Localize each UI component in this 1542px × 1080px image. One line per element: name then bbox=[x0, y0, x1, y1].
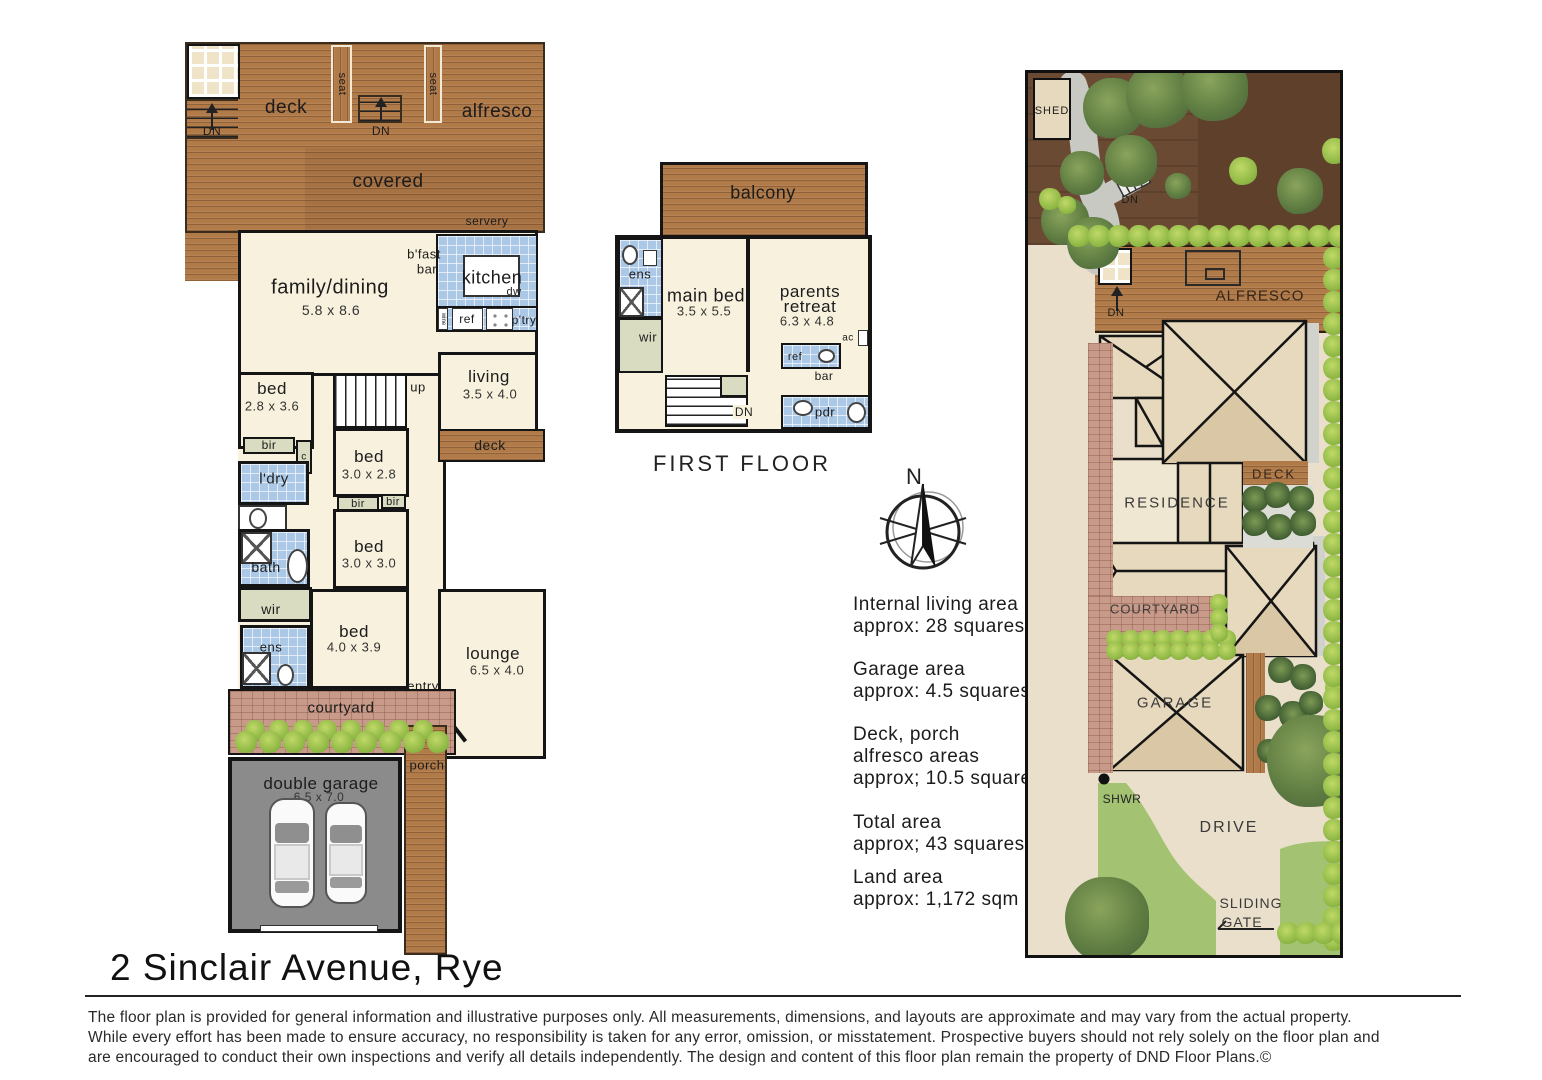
hedge-bush-icon bbox=[307, 731, 329, 753]
hedge-bush-icon bbox=[1228, 225, 1250, 247]
hedge-bush-icon bbox=[1128, 225, 1150, 247]
wine-label: wine bbox=[440, 313, 446, 325]
hedge-bush-icon bbox=[1323, 511, 1343, 533]
shower-icon bbox=[619, 287, 644, 317]
compass-north-label: N bbox=[906, 466, 922, 489]
disclaimer-line-1: The floor plan is provided for general i… bbox=[88, 1009, 1352, 1027]
hedge-bush-icon bbox=[1323, 797, 1343, 819]
stat-deck-2: alfresco areas bbox=[853, 746, 979, 768]
hedge-bush-icon bbox=[1323, 665, 1343, 687]
hedge-bush-icon bbox=[1229, 157, 1257, 185]
hedge-bush-icon bbox=[259, 731, 281, 753]
bed1-label: bed bbox=[257, 379, 287, 399]
hedge-bush-icon bbox=[235, 731, 257, 753]
living-label: living bbox=[468, 367, 510, 387]
hedge-bush-icon bbox=[1323, 709, 1343, 731]
bathtub-icon bbox=[287, 549, 308, 583]
garage-door bbox=[260, 925, 378, 932]
site-shwr-label: SHWR bbox=[1103, 792, 1142, 806]
stat-internal-2: approx: 28 squares bbox=[853, 616, 1025, 638]
stat-internal-1: Internal living area bbox=[853, 594, 1018, 616]
bed3-label: bed bbox=[354, 537, 384, 557]
hedge-bush-icon bbox=[1323, 291, 1343, 313]
deck-label: deck bbox=[265, 97, 307, 119]
shower-icon bbox=[242, 652, 271, 685]
stat-total-1: Total area bbox=[853, 812, 941, 834]
shed-label: SHED bbox=[1035, 105, 1070, 117]
hedge-bush-icon bbox=[1218, 642, 1236, 660]
stat-garage-1: Garage area bbox=[853, 659, 965, 681]
site-garage-label: GARAGE bbox=[1137, 695, 1213, 712]
pantry-label: p'try bbox=[512, 313, 537, 327]
ff-dn-label: DN bbox=[733, 405, 755, 419]
hedge-bush-icon bbox=[1148, 225, 1170, 247]
site-alfresco-label: ALFRESCO bbox=[1216, 288, 1305, 305]
hedge-bush-icon bbox=[1208, 225, 1230, 247]
main-bed-dims: 3.5 x 5.5 bbox=[677, 304, 731, 319]
bed2-label: bed bbox=[354, 447, 384, 467]
site-plan: SHED DN DN ALFRESCO DECK RESIDENCE COURT… bbox=[1025, 70, 1343, 958]
up-arrow-icon bbox=[380, 100, 382, 120]
fern-icon bbox=[1299, 691, 1323, 715]
bir-label-1: bir bbox=[262, 438, 277, 452]
hedge-bush-icon bbox=[1323, 731, 1343, 753]
disclaimer-line-2: While every effort has been made to ensu… bbox=[88, 1029, 1380, 1047]
hedge-bush-icon bbox=[1210, 624, 1228, 642]
site-courtyard-label: COURTYARD bbox=[1110, 602, 1200, 617]
first-floor-title: FIRST FLOOR bbox=[653, 451, 831, 477]
mainbed-wall bbox=[746, 238, 750, 372]
hedge-bush-icon bbox=[1323, 489, 1343, 511]
stat-land-2: approx: 1,172 sqm bbox=[853, 889, 1019, 911]
bfast-bar-label-1: b'fast bbox=[407, 247, 441, 262]
hedge-bush-icon bbox=[403, 731, 425, 753]
fern-icon bbox=[1264, 482, 1290, 508]
small-deck-label: deck bbox=[474, 437, 506, 453]
ref-label: ref bbox=[459, 312, 475, 326]
hedge-bush-icon bbox=[1168, 225, 1190, 247]
site-brick-path bbox=[1088, 343, 1113, 773]
deck-stair-landing bbox=[187, 44, 240, 99]
toilet-icon bbox=[622, 245, 638, 265]
pdr-basin-icon bbox=[793, 400, 813, 416]
lounge-label: lounge bbox=[466, 644, 520, 664]
hedge-bush-icon bbox=[1068, 225, 1090, 247]
hedge-bush-icon bbox=[1188, 225, 1210, 247]
stat-total-2: approx; 43 squares bbox=[853, 834, 1025, 856]
parents-retreat-dims: 6.3 x 4.8 bbox=[780, 314, 834, 329]
hedge-bush-icon bbox=[1323, 555, 1343, 577]
ff-ref-label: ref bbox=[788, 351, 802, 363]
pdr-label: pdr bbox=[815, 405, 835, 420]
hedge-bush-icon bbox=[1323, 753, 1343, 775]
hedge-bush-icon bbox=[1308, 225, 1330, 247]
family-dining-label: family/dining bbox=[271, 277, 389, 300]
seat-label-1: seat bbox=[336, 73, 348, 96]
ff-wir-label: wir bbox=[639, 330, 657, 345]
hedge-bush-icon bbox=[1323, 247, 1343, 269]
site-residence-label: RESIDENCE bbox=[1124, 495, 1230, 512]
hedge-bush-icon bbox=[1248, 225, 1270, 247]
fern-icon bbox=[1288, 486, 1314, 512]
hedge-bush-icon bbox=[1323, 885, 1343, 907]
hedge-bush-icon bbox=[379, 731, 401, 753]
laundry-label: l'dry bbox=[259, 471, 289, 488]
hedge-bush-icon bbox=[1328, 225, 1343, 247]
hedge-bush-icon bbox=[1323, 467, 1343, 489]
alfresco-bench bbox=[1186, 251, 1240, 285]
family-dining-dims: 5.8 x 8.6 bbox=[302, 302, 360, 318]
alfresco-label: alfresco bbox=[462, 101, 533, 123]
bar-sink-icon bbox=[818, 349, 835, 363]
servery-label: servery bbox=[466, 214, 509, 228]
property-address: 2 Sinclair Avenue, Rye bbox=[110, 947, 504, 989]
site-drive-label: DRIVE bbox=[1200, 819, 1259, 837]
fern-icon bbox=[1290, 510, 1316, 536]
hedge-bush-icon bbox=[283, 731, 305, 753]
hedge-bush-icon bbox=[1323, 445, 1343, 467]
site-dn-label-2: DN bbox=[1108, 307, 1125, 319]
hedge-bush-icon bbox=[1323, 313, 1343, 335]
compass-rose: N bbox=[868, 466, 978, 591]
fern-icon bbox=[1290, 664, 1316, 690]
wir-label: wir bbox=[261, 601, 280, 617]
hedge-bush-icon bbox=[1108, 225, 1130, 247]
stat-deck-1: Deck, porch bbox=[853, 724, 960, 746]
hedge-bush-icon bbox=[1323, 863, 1343, 885]
fern-icon bbox=[1255, 695, 1281, 721]
shower-point bbox=[1099, 774, 1110, 785]
up-label: up bbox=[410, 380, 425, 395]
toilet-icon bbox=[847, 402, 866, 423]
living-dims: 3.5 x 4.0 bbox=[463, 387, 517, 402]
ff-landing bbox=[720, 375, 748, 397]
side-path bbox=[1306, 323, 1319, 463]
bath-label: bath bbox=[251, 559, 280, 575]
toilet-icon bbox=[249, 508, 267, 529]
ac-label: ac bbox=[842, 333, 854, 344]
tree-icon bbox=[1277, 168, 1323, 214]
stat-land-1: Land area bbox=[853, 867, 943, 889]
fern-icon bbox=[1242, 510, 1268, 536]
hedge-bush-icon bbox=[427, 731, 449, 753]
stat-deck-3: approx; 10.5 squares bbox=[853, 768, 1042, 790]
covered-label: covered bbox=[352, 171, 423, 193]
tree-icon bbox=[1165, 173, 1191, 199]
fern-icon bbox=[1266, 514, 1292, 540]
hedge-bush-icon bbox=[1322, 138, 1343, 164]
floor-plan-page: DN deck alfresco covered seat seat DN se… bbox=[0, 0, 1542, 1080]
bed2-dims: 3.0 x 2.8 bbox=[342, 467, 396, 482]
seat-label-2: seat bbox=[427, 73, 439, 96]
hedge-bush-icon bbox=[1268, 225, 1290, 247]
hedge-bush-icon bbox=[1323, 643, 1343, 665]
dn-label-deck-center: DN bbox=[372, 124, 390, 138]
cars-top-view bbox=[258, 797, 378, 912]
hedge-bush-icon bbox=[1323, 577, 1343, 599]
hedge-bush-icon bbox=[1323, 357, 1343, 379]
site-deck-label: DECK bbox=[1252, 467, 1296, 482]
hedge-bush-icon bbox=[1323, 819, 1343, 841]
hedge-bush-icon bbox=[1323, 379, 1343, 401]
hedge-bush-icon bbox=[1288, 225, 1310, 247]
dn-label-deck-left: DN bbox=[203, 124, 221, 138]
cooktop-icon bbox=[486, 308, 513, 330]
hedge-bush-icon bbox=[1323, 775, 1343, 797]
ac-unit bbox=[858, 330, 868, 346]
stairs-up bbox=[333, 374, 407, 428]
lounge-dims: 6.5 x 4.0 bbox=[470, 663, 524, 678]
site-gate-label-1: SLIDING bbox=[1219, 895, 1282, 911]
toilet-icon bbox=[277, 664, 294, 686]
hedge-bush-icon bbox=[355, 731, 377, 753]
ens-label: ens bbox=[260, 640, 282, 655]
hedge-bush-icon bbox=[1331, 922, 1343, 944]
bed4-dims: 4.0 x 3.9 bbox=[327, 640, 381, 655]
courtyard-label: courtyard bbox=[307, 700, 374, 717]
hedge-bush-icon bbox=[1323, 621, 1343, 643]
dw-label: dw bbox=[506, 286, 521, 298]
tree-icon bbox=[1060, 151, 1104, 195]
hedge-bush-icon bbox=[1323, 687, 1343, 709]
bfast-bar-label-2: bar bbox=[417, 262, 437, 277]
tree-icon bbox=[1105, 135, 1157, 187]
hedge-bush-icon bbox=[331, 731, 353, 753]
vanity bbox=[643, 250, 657, 266]
hedge-bush-icon bbox=[1323, 533, 1343, 555]
site-gate-label-2: GATE bbox=[1221, 914, 1262, 930]
hedge-bush-icon bbox=[1088, 225, 1110, 247]
hedge-bush-icon bbox=[1323, 401, 1343, 423]
hedge-bush-icon bbox=[1323, 599, 1343, 621]
footer-divider bbox=[85, 995, 1461, 997]
hedge-bush-icon bbox=[1323, 841, 1343, 863]
hedge-bush-icon bbox=[1323, 269, 1343, 291]
bed1-dims: 2.8 x 3.6 bbox=[245, 399, 299, 414]
site-dn-label-1: DN bbox=[1122, 194, 1139, 206]
hedge-bush-icon bbox=[1058, 196, 1076, 214]
tree-icon bbox=[1126, 70, 1190, 128]
hedge-bush-icon bbox=[1323, 423, 1343, 445]
bar-label: bar bbox=[815, 369, 834, 383]
disclaimer-line-3: are encouraged to conduct their own insp… bbox=[88, 1049, 1272, 1067]
ground-deck-left-strip bbox=[185, 233, 238, 281]
bed3-dims: 3.0 x 3.0 bbox=[342, 556, 396, 571]
balcony-label: balcony bbox=[730, 183, 796, 204]
stat-garage-2: approx: 4.5 squares bbox=[853, 681, 1030, 703]
hedge-bush-icon bbox=[1323, 335, 1343, 357]
tree-icon bbox=[1065, 877, 1149, 958]
ff-wir bbox=[618, 318, 663, 373]
bir-label-3: bir bbox=[386, 496, 400, 508]
porch-label: porch bbox=[409, 758, 444, 773]
ff-ens-label: ens bbox=[629, 267, 651, 282]
